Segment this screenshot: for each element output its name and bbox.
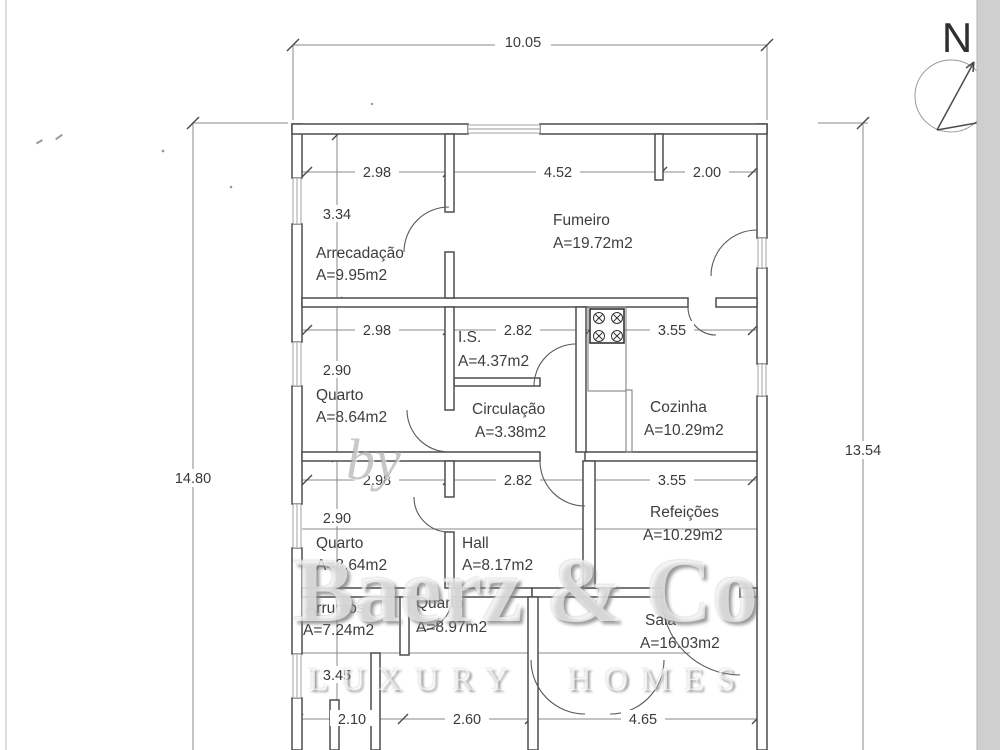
dim-height-right: 13.54: [845, 443, 881, 459]
room-area-hall: A=8.17m2: [462, 557, 533, 574]
floor-plan-scan: N 10.05 14.80 13.54 2.98 4.52 2.00 2.98 …: [0, 0, 1000, 750]
room-name-quarto-1: Quarto: [316, 387, 363, 404]
dim-col-left-0: 3.34: [323, 207, 351, 223]
room-area-quarto-1: A=8.64m2: [316, 409, 387, 426]
room-name-fumeiro: Fumeiro: [553, 212, 610, 229]
dim-col-left-1: 2.90: [323, 363, 351, 379]
room-name-arrumos: Arrumos: [306, 600, 365, 617]
dim-col-left-2: 2.90: [323, 511, 351, 527]
dim-row-bottom-0: 2.10: [338, 712, 366, 728]
room-area-quarto-2: A=8.64m2: [316, 557, 387, 574]
room-area-fumeiro: A=19.72m2: [553, 235, 633, 252]
floor-plan-drawing: N 10.05 14.80 13.54 2.98 4.52 2.00 2.98 …: [0, 0, 1000, 750]
room-area-arrecadacao: A=9.95m2: [316, 267, 387, 284]
room-labels: Arrecadação A=9.95m2 Fumeiro A=19.72m2 I…: [303, 212, 724, 652]
scan-specks: [36, 103, 373, 189]
room-name-arrecadacao: Arrecadação: [316, 245, 404, 262]
north-label: N: [942, 14, 972, 61]
dim-row-lower-2: 3.55: [658, 473, 686, 489]
room-name-circulacao: Circulação: [472, 401, 545, 418]
room-name-cozinha: Cozinha: [650, 399, 707, 416]
room-area-cozinha: A=10.29m2: [644, 422, 724, 439]
scan-edge-band: [977, 0, 1000, 750]
room-area-is: A=4.37m2: [458, 353, 529, 370]
dim-row-lower-0: 2.98: [363, 473, 391, 489]
room-name-quarto-2: Quarto: [316, 535, 363, 552]
dim-row-middle-0: 2.98: [363, 323, 391, 339]
room-area-arrumos: A=7.24m2: [303, 622, 374, 639]
dim-row-lower-1: 2.82: [504, 473, 532, 489]
dim-row-top-1: 4.52: [544, 165, 572, 181]
room-name-sala: Sala: [645, 612, 676, 629]
stove-icon: [590, 309, 624, 343]
dim-row-middle-1: 2.82: [504, 323, 532, 339]
room-name-quarto-3: Quarto: [416, 595, 463, 612]
dim-overall-width: 10.05: [505, 35, 541, 51]
room-area-sala: A=16.03m2: [640, 635, 720, 652]
dim-col-left-3: 3.45: [323, 668, 351, 684]
dim-row-bottom-1: 2.60: [453, 712, 481, 728]
dim-row-middle-2: 3.55: [658, 323, 686, 339]
room-name-hall: Hall: [462, 535, 489, 552]
dim-row-top-2: 2.00: [693, 165, 721, 181]
room-name-refeicoes: Refeições: [650, 504, 719, 521]
room-name-is: I.S.: [458, 329, 481, 346]
room-area-refeicoes: A=10.29m2: [643, 527, 723, 544]
room-area-quarto-3: A=8.97m2: [416, 619, 487, 636]
dim-height-left: 14.80: [175, 471, 211, 487]
dim-row-top-0: 2.98: [363, 165, 391, 181]
room-area-circulacao: A=3.38m2: [475, 424, 546, 441]
dim-row-bottom-2: 4.65: [629, 712, 657, 728]
